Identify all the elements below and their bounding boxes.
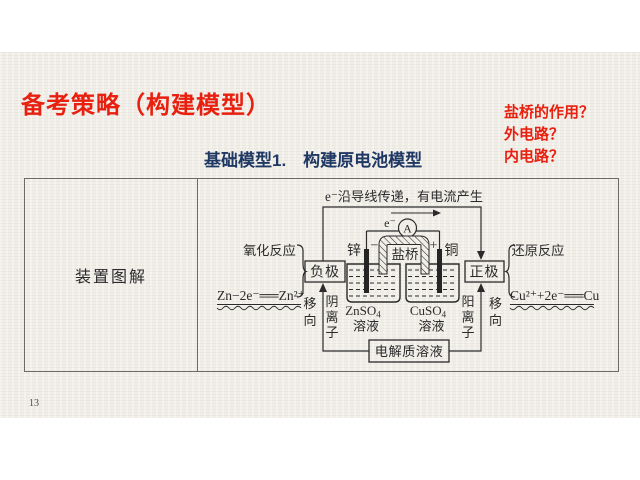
- negative-electrode-label: 负极: [310, 265, 340, 281]
- reduction-equation-wavy-line: [510, 306, 594, 310]
- page-title: 备考策略（构建模型）: [21, 85, 271, 120]
- page-number: 13: [29, 398, 39, 409]
- svg-text:向: 向: [303, 313, 316, 328]
- svg-text:离: 离: [325, 310, 338, 325]
- svg-text:阴: 阴: [325, 294, 338, 309]
- zinc-label: 锌: [347, 243, 361, 259]
- copper-electrode: [437, 249, 442, 293]
- question-line: 盐桥的作用？: [504, 102, 594, 124]
- electron-direction-arrowhead-icon: [433, 210, 441, 217]
- svg-text:向: 向: [489, 313, 502, 328]
- svg-text:离: 离: [461, 310, 474, 325]
- svg-text:子: 子: [325, 325, 338, 340]
- current-caption: e⁻沿导线传递，有电流产生: [325, 189, 483, 204]
- oxidation-equation-wavy-line: [217, 306, 301, 310]
- subtitle: 基础模型1. 构建原电池模型: [204, 146, 422, 171]
- oxidation-label: 氧化反应: [243, 243, 296, 258]
- salt-bridge-label: 盐桥: [392, 247, 419, 262]
- ammeter-label: A: [403, 222, 412, 236]
- cation-label: 阳 离 子: [461, 294, 474, 340]
- zinc-electrode: [364, 249, 369, 293]
- positive-electrode-label: 正极: [470, 265, 500, 281]
- move-label-right: 移 向: [489, 296, 502, 328]
- svg-text:阳: 阳: [461, 294, 474, 309]
- svg-text:子: 子: [461, 325, 474, 340]
- question-line: 内电路？: [504, 146, 594, 168]
- model-table: 装置图解 e⁻沿导线传递，有电流产生: [24, 178, 619, 372]
- slide: 备考策略（构建模型） 盐桥的作用？ 外电路？ 内电路？ 基础模型1. 构建原电池…: [0, 52, 640, 418]
- row-label: 装置图解: [75, 263, 147, 287]
- reduction-equation: Cu²⁺+2e⁻══Cu: [510, 288, 600, 303]
- cation-up-arrow-icon: [477, 283, 485, 292]
- anion-up-arrow-icon: [319, 283, 327, 292]
- copper-label: 铜: [445, 243, 459, 259]
- diagram-cell: e⁻沿导线传递，有电流产生 e⁻: [198, 179, 618, 371]
- plus-sign: +: [430, 239, 438, 254]
- row-label-cell: 装置图解: [25, 179, 198, 371]
- questions-block: 盐桥的作用？ 外电路？ 内电路？: [504, 102, 594, 168]
- galvanic-cell-diagram: e⁻沿导线传递，有电流产生 e⁻: [198, 179, 618, 369]
- move-label-left: 移 向: [303, 296, 316, 328]
- electrolyte-label: 电解质溶液: [375, 344, 443, 359]
- zn-solution-formula: ZnSO4: [345, 303, 381, 320]
- reduction-label: 还原反应: [512, 243, 565, 258]
- svg-text:移: 移: [489, 296, 502, 311]
- zn-solution-label: 溶液: [353, 319, 379, 334]
- electron-label: e⁻: [384, 216, 396, 230]
- cu-solution-label: 溶液: [418, 319, 444, 334]
- minus-sign: −: [371, 239, 379, 254]
- anion-label: 阴 离 子: [325, 294, 338, 340]
- cu-solution-formula: CuSO4: [410, 303, 447, 320]
- screenshot-root: 备考策略（构建模型） 盐桥的作用？ 外电路？ 内电路？ 基础模型1. 构建原电池…: [0, 0, 640, 480]
- question-line: 外电路？: [504, 124, 594, 146]
- oxidation-equation: Zn−2e⁻══Zn²⁺: [217, 288, 305, 303]
- svg-text:移: 移: [303, 296, 316, 311]
- electron-flow-down-arrow-icon: [477, 251, 485, 260]
